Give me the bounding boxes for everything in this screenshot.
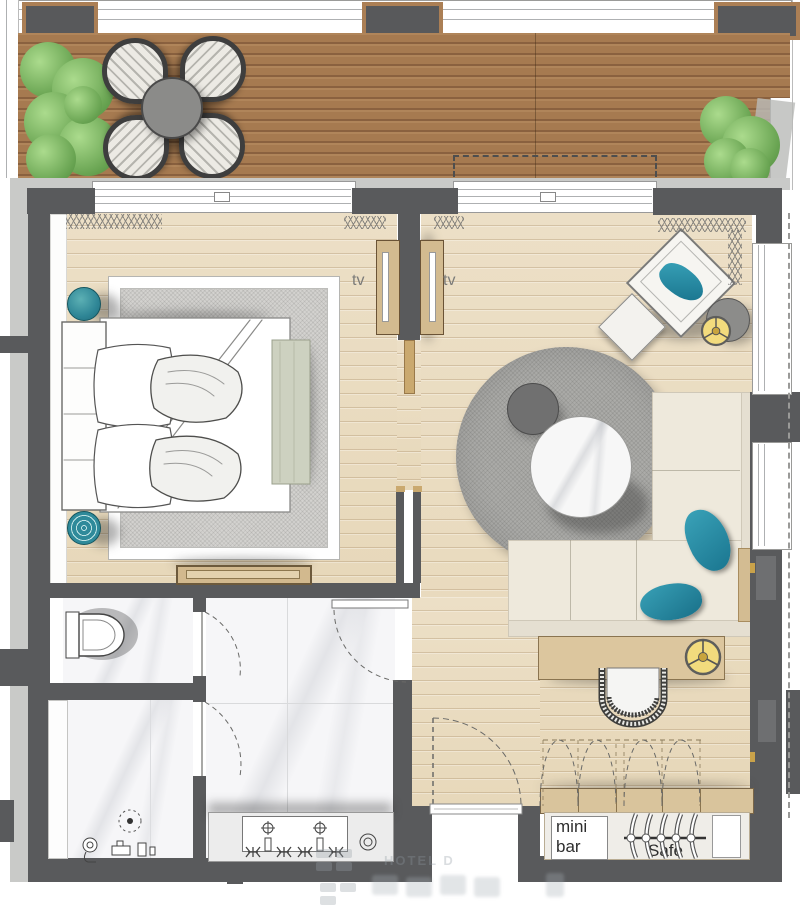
desk-chair (602, 668, 664, 724)
desk-lamp (686, 640, 720, 674)
shower-fittings (83, 838, 155, 862)
bed (62, 318, 310, 512)
floor-plan: tv tv minibar Safe (0, 0, 800, 908)
watermark: HOTEL D (298, 845, 628, 907)
toilet (66, 608, 138, 660)
floor-lamp (702, 317, 730, 345)
plan-linework (0, 0, 800, 908)
hangers (624, 814, 706, 858)
watermark-text: HOTEL D (384, 853, 455, 868)
shower-drain (119, 810, 141, 832)
